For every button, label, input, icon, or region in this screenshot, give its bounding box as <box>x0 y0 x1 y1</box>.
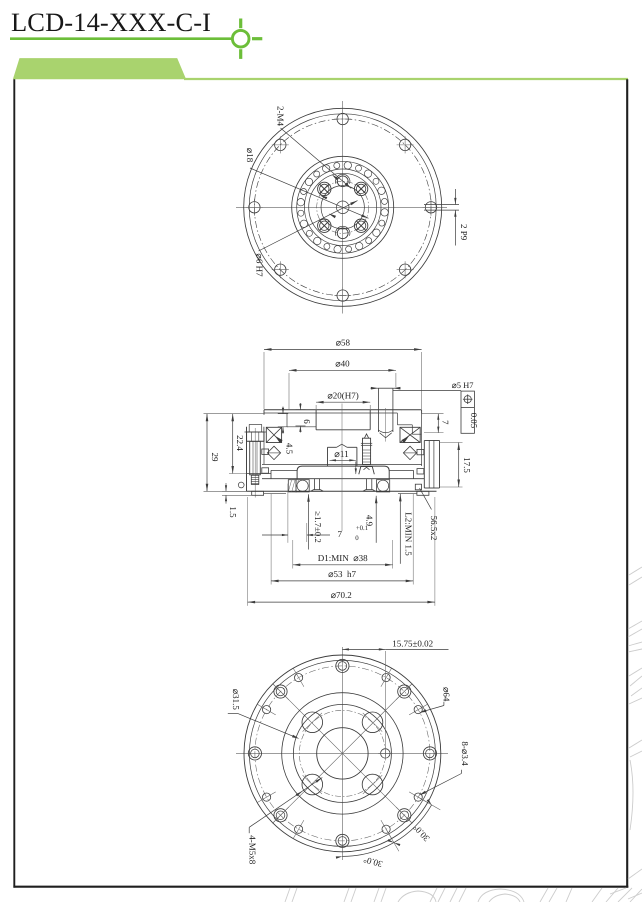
svg-text:⌀70.2: ⌀70.2 <box>331 590 352 600</box>
svg-text:17.5: 17.5 <box>462 457 472 473</box>
svg-text:⌀18: ⌀18 <box>245 148 255 163</box>
svg-text:L2:MIN 1.5: L2:MIN 1.5 <box>404 512 414 556</box>
svg-text:⌀53 h7: ⌀53 h7 <box>328 569 356 579</box>
svg-text:⌀5 H7: ⌀5 H7 <box>452 380 474 390</box>
svg-text:7: 7 <box>440 420 450 425</box>
svg-text:30.0°: 30.0° <box>362 854 384 869</box>
svg-text:56.5x2: 56.5x2 <box>429 516 439 541</box>
svg-text:7: 7 <box>337 529 342 539</box>
svg-text:29: 29 <box>210 453 220 463</box>
svg-text:≥1.7±0.2: ≥1.7±0.2 <box>313 511 323 543</box>
svg-text:1.5: 1.5 <box>228 506 238 518</box>
svg-text:D1:MIN ⌀38: D1:MIN ⌀38 <box>318 553 368 563</box>
svg-text:22.4: 22.4 <box>235 435 245 451</box>
svg-text:6: 6 <box>302 419 312 424</box>
svg-text:8-⌀3.4: 8-⌀3.4 <box>460 741 470 766</box>
svg-text:4-M5x8: 4-M5x8 <box>247 835 257 864</box>
svg-text:4.5: 4.5 <box>285 443 295 455</box>
svg-text:⌀64: ⌀64 <box>442 687 452 702</box>
svg-text:15.75±0.02: 15.75±0.02 <box>392 638 433 648</box>
svg-text:⌀20(H7): ⌀20(H7) <box>327 390 358 400</box>
svg-text:30.0°: 30.0° <box>411 822 432 843</box>
svg-text:0.05: 0.05 <box>469 413 479 429</box>
svg-text:⌀58: ⌀58 <box>336 338 351 348</box>
svg-text:⌀31.5: ⌀31.5 <box>231 689 241 711</box>
svg-text:⌀40: ⌀40 <box>335 359 350 369</box>
svg-text:0: 0 <box>355 535 359 542</box>
svg-text:LCD-14-XXX-C-I: LCD-14-XXX-C-I <box>11 7 211 37</box>
svg-text:2 P9: 2 P9 <box>459 224 469 241</box>
svg-text:⌀11: ⌀11 <box>334 449 349 459</box>
svg-text:+0.1: +0.1 <box>356 525 368 532</box>
svg-text:2-M4: 2-M4 <box>276 106 286 126</box>
svg-text:⌀6 H7: ⌀6 H7 <box>255 253 265 277</box>
